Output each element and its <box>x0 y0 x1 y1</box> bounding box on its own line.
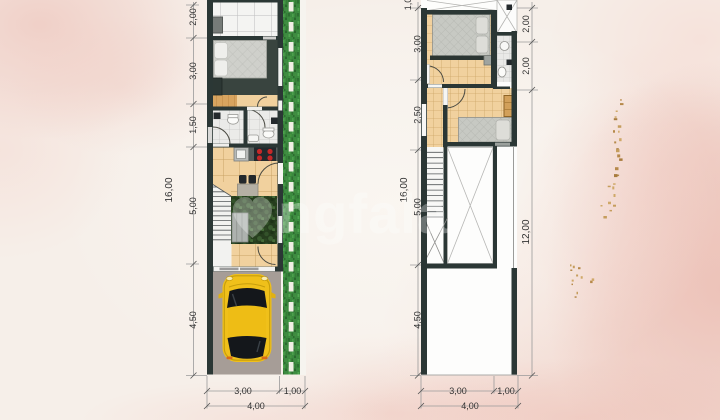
svg-text:5,00: 5,00 <box>188 197 198 215</box>
svg-text:4,00: 4,00 <box>461 401 479 411</box>
svg-text:2,00: 2,00 <box>521 57 531 75</box>
svg-text:2,00: 2,00 <box>188 8 198 26</box>
svg-text:12,00: 12,00 <box>521 219 532 244</box>
svg-text:1,00: 1,00 <box>284 386 302 396</box>
svg-text:4,50: 4,50 <box>413 311 423 329</box>
svg-text:1,50: 1,50 <box>188 116 198 134</box>
svg-text:1,00: 1,00 <box>403 0 413 10</box>
svg-text:2,50: 2,50 <box>413 106 423 124</box>
svg-text:3,00: 3,00 <box>413 35 423 53</box>
svg-text:ngfala: ngfala <box>278 182 449 245</box>
svg-text:4,50: 4,50 <box>188 311 198 329</box>
svg-text:3,00: 3,00 <box>234 386 252 396</box>
svg-text:3,00: 3,00 <box>449 386 467 396</box>
svg-text:2,00: 2,00 <box>521 15 531 33</box>
svg-text:16,00: 16,00 <box>164 177 175 202</box>
svg-text:3,00: 3,00 <box>188 62 198 80</box>
svg-text:1,00: 1,00 <box>497 386 515 396</box>
svg-text:4,00: 4,00 <box>247 401 265 411</box>
